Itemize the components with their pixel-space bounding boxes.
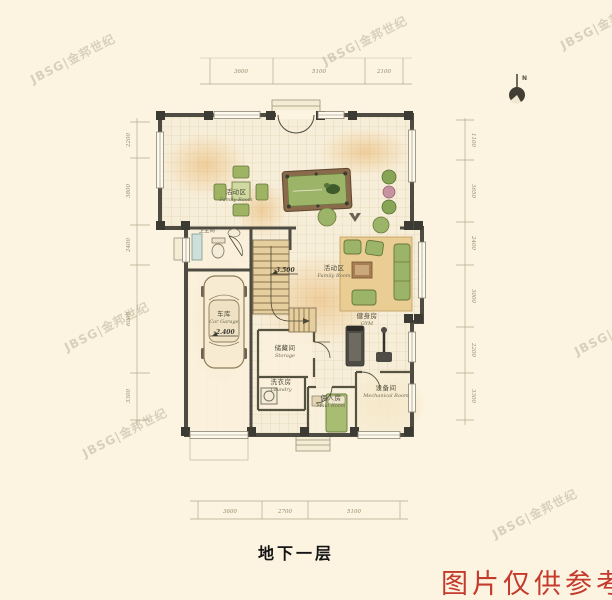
dim-left-5: 3300 bbox=[126, 389, 132, 403]
billiards-table bbox=[282, 168, 352, 212]
dim-right-5: 2200 bbox=[470, 342, 476, 357]
sink bbox=[228, 229, 240, 237]
driveway bbox=[190, 438, 248, 460]
dim-left-4: 6000 bbox=[126, 312, 132, 326]
room-label-maid-en: Maid Room bbox=[315, 403, 345, 409]
dim-right-3: 2400 bbox=[470, 235, 476, 250]
dim-top-3: 2100 bbox=[376, 69, 391, 75]
room-label-bathroom-cn: 卫生间 bbox=[199, 227, 215, 234]
dim-top-2: 5100 bbox=[312, 69, 326, 75]
room-label-laundry-en: Laundry bbox=[269, 387, 291, 393]
room-label-mechanical-cn: 设备间 bbox=[376, 383, 397, 392]
elevation-garage: -2.400 bbox=[213, 329, 235, 336]
dim-right-1: 1100 bbox=[470, 133, 476, 147]
room-label-storage-en: Storage bbox=[275, 353, 295, 359]
room-label-storage-cn: 储藏间 bbox=[275, 343, 296, 352]
room-label-family-upper-en: Family Room bbox=[219, 197, 253, 203]
elevation-family: -3.500 bbox=[273, 267, 295, 274]
plan-title: 地下一层 bbox=[0, 540, 592, 564]
north-arrow-icon: N bbox=[509, 74, 527, 104]
room-label-mechanical-en: Mechanical Room bbox=[362, 393, 409, 399]
room-label-garage-cn: 车库 bbox=[217, 309, 231, 318]
room-label-family-upper-cn: 活动区 bbox=[226, 187, 247, 196]
dim-left-1: 2200 bbox=[126, 133, 132, 148]
room-label-gym-en: GYM bbox=[361, 321, 374, 327]
dim-right-2: 3650 bbox=[470, 184, 476, 198]
room-label-garage-en: Car Garage bbox=[209, 319, 238, 325]
mech-floor bbox=[357, 373, 411, 433]
dim-bottom-1: 3600 bbox=[223, 509, 237, 515]
floor-plan-drawing: 活动区 Family Room 活动区 Family Room 卫生间 车库 C… bbox=[0, 0, 612, 600]
reference-stamp: 图片仅供参考 bbox=[441, 562, 612, 600]
room-label-family-center-cn: 活动区 bbox=[324, 263, 345, 272]
north-label: N bbox=[522, 75, 527, 82]
dim-right-6: 3300 bbox=[470, 389, 476, 403]
dim-left-2: 3800 bbox=[126, 184, 132, 198]
rear-stoop bbox=[296, 435, 330, 451]
room-label-laundry-cn: 洗衣房 bbox=[271, 377, 292, 386]
floorplan-page: JBSG|金邦世纪 JBSG|金邦世纪 JBSG|金邦世纪 JBSG|金邦世纪 … bbox=[0, 0, 612, 600]
dim-left-3: 2400 bbox=[126, 238, 132, 253]
dim-bottom-3: 5100 bbox=[347, 509, 361, 515]
room-label-family-center-en: Family Room bbox=[317, 273, 351, 279]
room-label-maid-cn: 佣人房 bbox=[321, 393, 342, 402]
room-label-gym-cn: 健身房 bbox=[357, 311, 378, 320]
dim-top-1: 3600 bbox=[234, 69, 248, 75]
dim-bottom-2: 2700 bbox=[277, 509, 292, 515]
dim-right-4: 3000 bbox=[470, 289, 476, 303]
toilet bbox=[212, 244, 224, 258]
